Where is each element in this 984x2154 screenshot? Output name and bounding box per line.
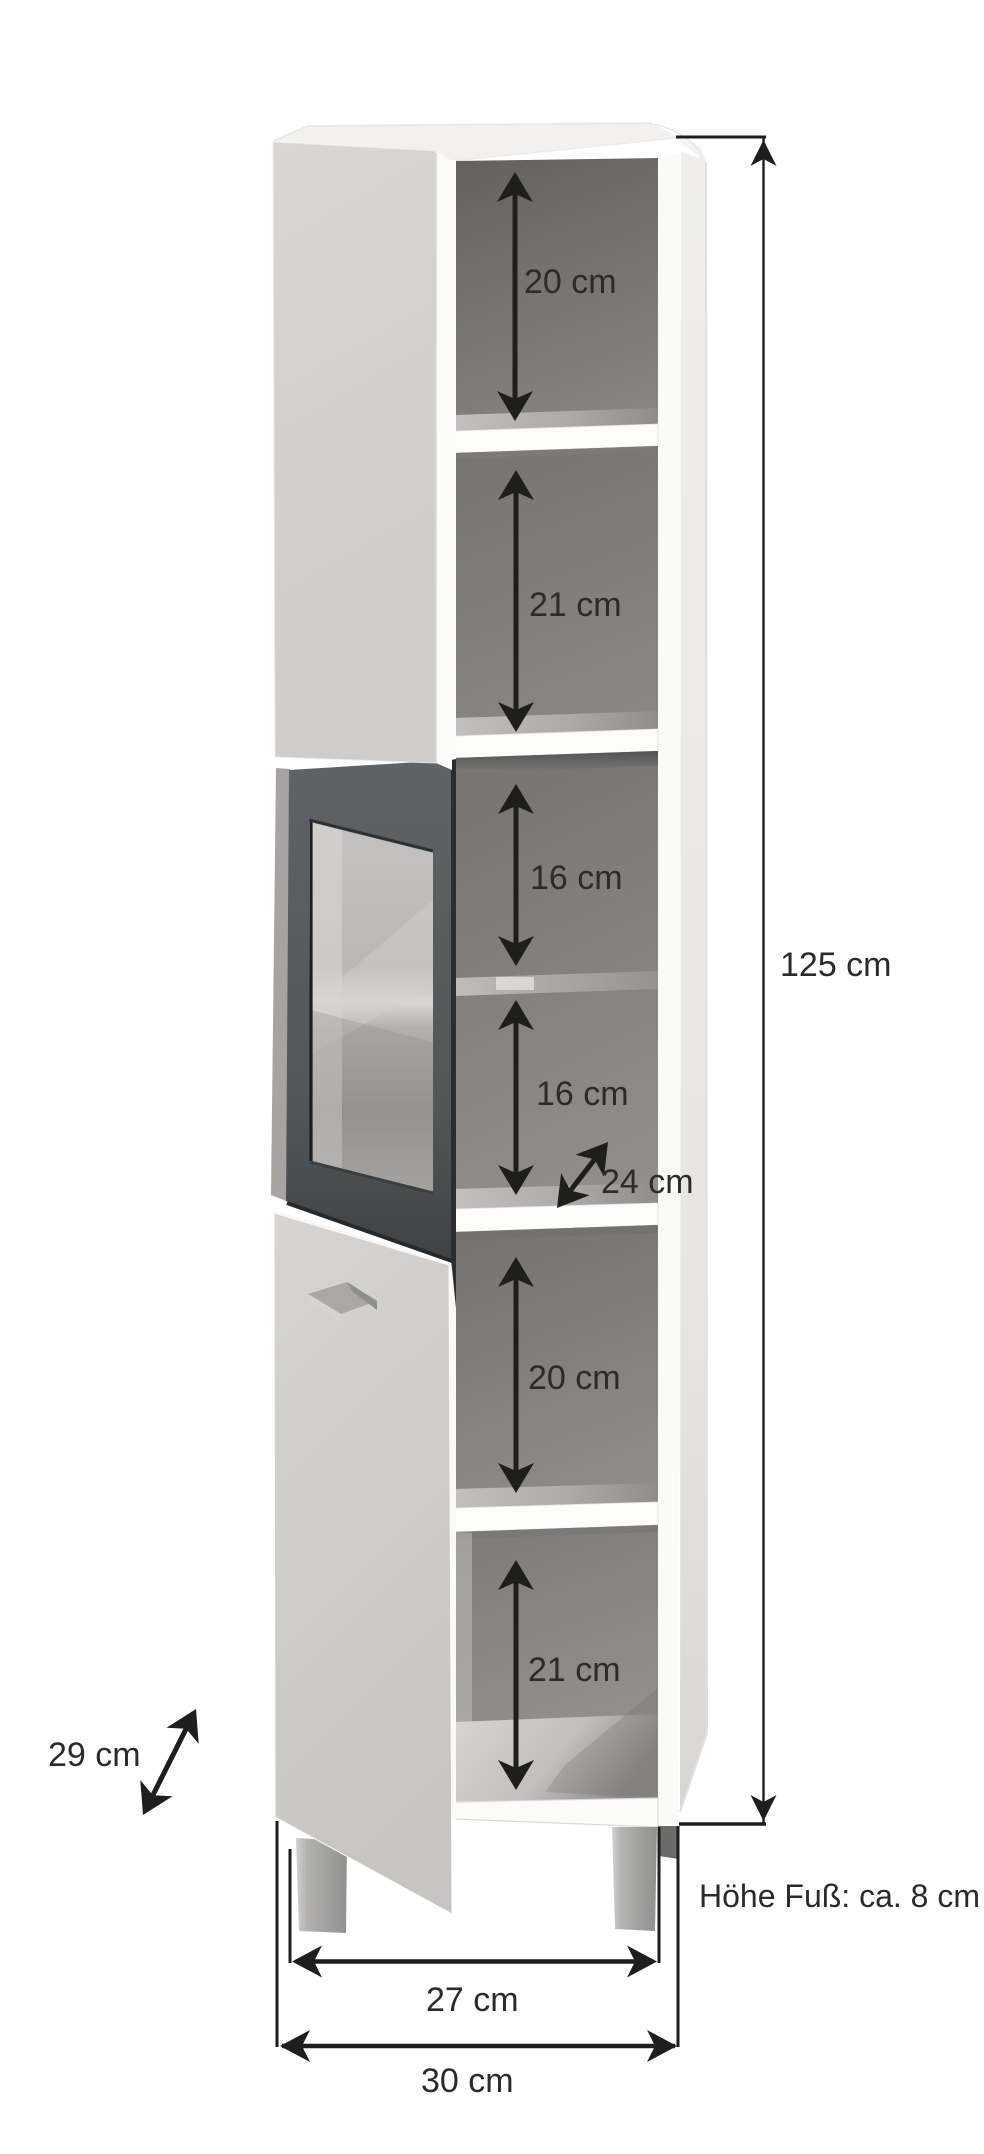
- svg-text:20 cm: 20 cm: [524, 263, 617, 301]
- svg-text:29 cm: 29 cm: [48, 1736, 141, 1774]
- svg-text:30 cm: 30 cm: [421, 2062, 514, 2100]
- svg-text:16 cm: 16 cm: [530, 859, 623, 897]
- svg-text:20 cm: 20 cm: [528, 1359, 621, 1397]
- svg-text:125 cm: 125 cm: [780, 946, 892, 984]
- svg-text:16 cm: 16 cm: [536, 1075, 629, 1113]
- svg-text:27 cm: 27 cm: [426, 1981, 519, 2019]
- svg-text:Höhe Fuß: ca. 8 cm: Höhe Fuß: ca. 8 cm: [699, 1878, 980, 1914]
- svg-text:21 cm: 21 cm: [528, 1651, 621, 1689]
- svg-text:24 cm: 24 cm: [601, 1163, 694, 1201]
- svg-text:21 cm: 21 cm: [529, 586, 622, 624]
